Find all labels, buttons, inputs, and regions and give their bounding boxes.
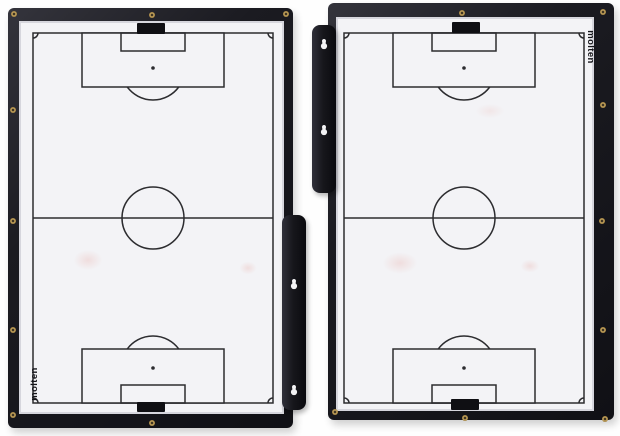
sheet-clip-bottom bbox=[137, 402, 165, 412]
screw-icon bbox=[11, 11, 17, 17]
sheet-clip-bottom bbox=[451, 399, 479, 410]
penalty-spot-bottom bbox=[151, 366, 155, 370]
soccer-pitch-drawing-left bbox=[32, 32, 274, 404]
screw-icon bbox=[10, 218, 16, 224]
screw-icon bbox=[332, 409, 338, 415]
penalty-spot-top bbox=[462, 66, 466, 70]
screw-icon bbox=[600, 327, 606, 333]
penalty-arc-top bbox=[127, 87, 179, 100]
penalty-spot-bottom bbox=[462, 366, 466, 370]
penalty-area-bottom bbox=[393, 349, 535, 403]
keyhole-slot-icon bbox=[290, 279, 298, 290]
sheet-clip-top bbox=[137, 23, 165, 34]
screw-icon bbox=[462, 415, 468, 421]
penalty-area-bottom bbox=[82, 349, 224, 403]
keyhole-slot-icon bbox=[290, 385, 298, 396]
screw-icon bbox=[459, 10, 465, 16]
screw-icon bbox=[602, 416, 608, 422]
product-photo: molten bbox=[0, 0, 620, 436]
screw-icon bbox=[10, 412, 16, 418]
molten-logo-left: molten bbox=[29, 362, 41, 406]
screw-icon bbox=[599, 218, 605, 224]
penalty-spot-top bbox=[151, 66, 155, 70]
penalty-arc-bottom bbox=[127, 336, 179, 349]
penalty-area-top bbox=[82, 33, 224, 87]
keyhole-slot-icon bbox=[320, 125, 328, 136]
tactic-board-left: molten bbox=[8, 8, 293, 428]
screw-icon bbox=[600, 102, 606, 108]
keyhole-slot-icon bbox=[320, 39, 328, 50]
screw-icon bbox=[149, 420, 155, 426]
screw-icon bbox=[600, 9, 606, 15]
hinge-bracket-left-board bbox=[282, 215, 306, 410]
soccer-pitch-drawing-right bbox=[343, 32, 585, 404]
screw-icon bbox=[283, 11, 289, 17]
screw-icon bbox=[10, 327, 16, 333]
tactic-board-right: molten bbox=[328, 3, 614, 420]
screw-icon bbox=[10, 107, 16, 113]
molten-logo-right: molten bbox=[584, 25, 596, 69]
hinge-bracket-right-board bbox=[312, 25, 336, 193]
sheet-clip-top bbox=[452, 22, 480, 33]
penalty-area-top bbox=[393, 33, 535, 87]
penalty-arc-top bbox=[438, 87, 490, 100]
penalty-arc-bottom bbox=[438, 336, 490, 349]
screw-icon bbox=[149, 12, 155, 18]
